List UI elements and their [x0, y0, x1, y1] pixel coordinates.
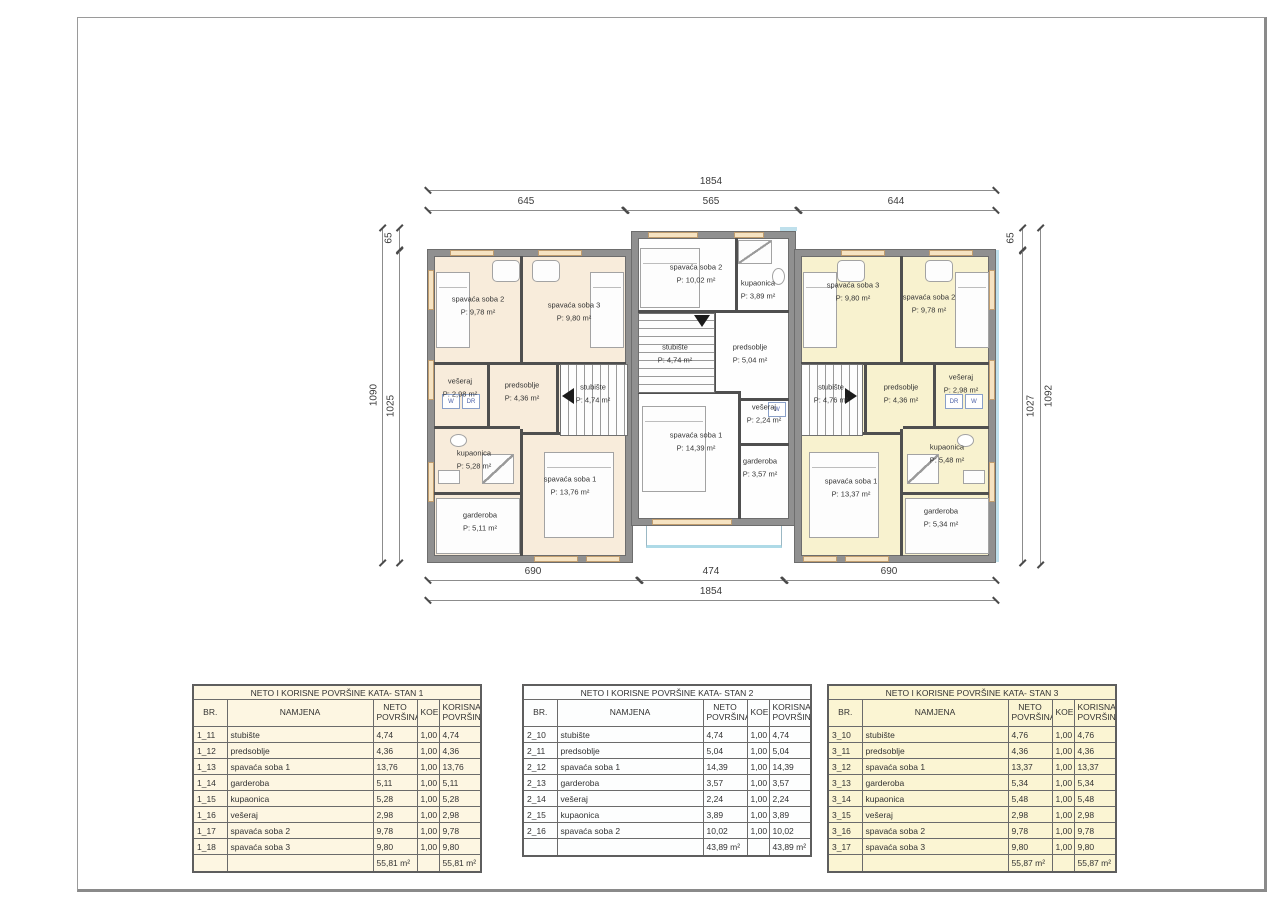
room-name: spavaća soba 2	[903, 291, 956, 304]
room-label-stubiste: stubište P: 4,76 m²	[814, 381, 849, 407]
table-cell: 2_12	[523, 759, 557, 775]
table-cell: 55,81 m²	[373, 855, 417, 873]
window-icon	[845, 556, 889, 562]
table-cell: garderoba	[557, 775, 703, 791]
table-cell: 1,00	[417, 775, 439, 791]
table-cell: 5,48	[1074, 791, 1116, 807]
bed-icon	[955, 272, 989, 348]
table-cell: KORISNA POVRŠINA	[1074, 700, 1116, 727]
table-cell: 9,80	[439, 839, 481, 855]
room-name: predsoblje	[733, 341, 768, 354]
area-table: NETO I KORISNE POVRŠINE KATA- STAN 2BR.N…	[522, 684, 812, 857]
wall	[520, 256, 523, 362]
table-cell: 1,00	[1052, 759, 1074, 775]
table-cell: BR.	[828, 700, 862, 727]
sink-icon	[963, 470, 985, 484]
room-name: kupaonica	[457, 447, 492, 460]
room-label-veseraj: vešeraj P: 2,98 m²	[944, 371, 979, 397]
table-cell: 5,11	[439, 775, 481, 791]
dim-line-top-seg3	[798, 210, 995, 211]
dim-label-left-outer: 1090	[369, 384, 380, 406]
dim-line-right-inner	[1022, 250, 1023, 562]
table-cell: 1,00	[747, 743, 769, 759]
table-cell: KOEF.	[1052, 700, 1074, 727]
table-cell: 1_18	[193, 839, 227, 855]
table-cell: 3_16	[828, 823, 862, 839]
room-label-spavaca-soba-3: spavaća soba 3 P: 9,80 m²	[827, 279, 880, 305]
table-cell: 14,39	[769, 759, 811, 775]
room-area: P: 5,28 m²	[457, 460, 492, 473]
table-cell	[828, 855, 862, 873]
room-name: stubište	[814, 381, 849, 394]
table-cell: 2,98	[439, 807, 481, 823]
table-cell: 3_10	[828, 727, 862, 743]
table-cell: spavaća soba 1	[227, 759, 373, 775]
room-name: spavaća soba 2	[670, 261, 723, 274]
room-name: predsoblje	[884, 381, 919, 394]
window-icon	[989, 462, 995, 502]
table-cell: kupaonica	[862, 791, 1008, 807]
table-cell: 9,78	[439, 823, 481, 839]
table-cell: 9,78	[373, 823, 417, 839]
dim-line-left-outer	[382, 228, 383, 562]
table-cell: 55,81 m²	[439, 855, 481, 873]
table-cell: 10,02	[703, 823, 747, 839]
window-icon	[734, 232, 764, 238]
window-icon	[586, 556, 620, 562]
room-label-spavaca-soba-1: spavaća soba 1 P: 13,76 m²	[544, 473, 597, 499]
table-cell: 3,89	[703, 807, 747, 823]
table-title: NETO I KORISNE POVRŠINE KATA- STAN 2	[523, 685, 811, 700]
table-title: NETO I KORISNE POVRŠINE KATA- STAN 3	[828, 685, 1116, 700]
table-cell: 2,24	[703, 791, 747, 807]
table-cell: predsoblje	[862, 743, 1008, 759]
room-label-veseraj: vešeraj P: 2,98 m²	[443, 375, 478, 401]
table-cell: 2_16	[523, 823, 557, 839]
table-cell: 10,02	[769, 823, 811, 839]
facade-strip-middle-top	[780, 227, 797, 231]
room-label-garderoba: garderoba P: 5,34 m²	[924, 505, 959, 531]
window-icon	[428, 462, 434, 502]
area-table: NETO I KORISNE POVRŠINE KATA- STAN 1BR.N…	[192, 684, 482, 873]
dim-line-bottom-seg1	[428, 580, 639, 581]
table-cell: KORISNA POVRŠINA	[439, 700, 481, 727]
room-name: garderoba	[463, 509, 497, 522]
room-area: P: 2,98 m²	[944, 384, 979, 397]
dim-line-bottom-seg2	[639, 580, 784, 581]
toilet-icon	[450, 434, 467, 447]
window-icon	[803, 556, 837, 562]
wall	[903, 492, 989, 495]
room-name: stubište	[576, 381, 611, 394]
table-title: NETO I KORISNE POVRŠINE KATA- STAN 1	[193, 685, 481, 700]
room-name: kupaonica	[930, 441, 965, 454]
room-name: garderoba	[743, 455, 778, 468]
wall	[556, 365, 559, 435]
room-name: spavaća soba 2	[452, 293, 505, 306]
dim-label-bottom-total: 1854	[700, 586, 722, 597]
unit-stan-1: W DR spavaća soba 2 P: 9,78 m² spavaća s…	[428, 250, 632, 562]
table-cell: garderoba	[227, 775, 373, 791]
room-area: P: 5,11 m²	[463, 522, 497, 535]
area-table-stan-3: NETO I KORISNE POVRŠINE KATA- STAN 3BR.N…	[827, 684, 1117, 873]
table-cell: spavaća soba 1	[557, 759, 703, 775]
table-cell: NETO POVRŠINA	[373, 700, 417, 727]
room-name: spavaća soba 1	[670, 429, 723, 442]
table-cell: 14,39	[703, 759, 747, 775]
room-label-predsoblje: predsoblje P: 4,36 m²	[884, 381, 919, 407]
room-name: spavaća soba 3	[548, 299, 601, 312]
room-name: vešeraj	[443, 375, 478, 388]
room-name: vešeraj	[747, 401, 782, 414]
room-area: P: 13,37 m²	[825, 488, 878, 501]
room-area: P: 4,74 m²	[658, 354, 693, 367]
dim-label-right-outer: 1092	[1044, 385, 1055, 407]
area-table-stan-1: NETO I KORISNE POVRŠINE KATA- STAN 1BR.N…	[192, 684, 482, 873]
table-cell: 1_17	[193, 823, 227, 839]
room-area: P: 14,39 m²	[670, 442, 723, 455]
table-cell: KOEF.	[747, 700, 769, 727]
dim-line-top-seg1	[428, 210, 625, 211]
desk-chair-icon	[492, 260, 520, 282]
room-area: P: 10,02 m²	[670, 274, 723, 287]
unit-stan-3: DR W spavaća soba 3 P: 9,80 m² spavaća s…	[795, 250, 995, 562]
room-label-spavaca-soba-1: spavaća soba 1 P: 14,39 m²	[670, 429, 723, 455]
table-cell: 1,00	[747, 759, 769, 775]
room-name: kupaonica	[741, 277, 776, 290]
table-cell: 1,00	[417, 743, 439, 759]
table-cell: BR.	[193, 700, 227, 727]
table-cell: NETO POVRŠINA	[703, 700, 747, 727]
table-cell: garderoba	[862, 775, 1008, 791]
window-icon	[841, 250, 885, 256]
table-cell: 9,80	[373, 839, 417, 855]
desk-chair-icon	[532, 260, 560, 282]
table-cell: 3_17	[828, 839, 862, 855]
table-cell	[227, 855, 373, 873]
wall	[434, 426, 520, 429]
table-cell	[417, 855, 439, 873]
room-name: vešeraj	[944, 371, 979, 384]
stairs-direction-arrow-icon	[562, 388, 574, 404]
table-cell: 1,00	[417, 727, 439, 743]
table-cell: 1,00	[1052, 775, 1074, 791]
table-cell: 2,98	[1008, 807, 1052, 823]
dim-label-bottom-seg3: 690	[881, 566, 898, 577]
table-cell: 2,98	[1074, 807, 1116, 823]
table-cell: 1_13	[193, 759, 227, 775]
table-cell: 9,80	[1074, 839, 1116, 855]
room-area: P: 9,78 m²	[452, 306, 505, 319]
table-cell: 3_12	[828, 759, 862, 775]
table-cell: 1,00	[747, 775, 769, 791]
table-cell: 1,00	[747, 791, 769, 807]
table-cell: 2_15	[523, 807, 557, 823]
table-cell: 5,48	[1008, 791, 1052, 807]
table-cell: 4,36	[373, 743, 417, 759]
room-name: garderoba	[924, 505, 959, 518]
room-area: P: 4,76 m²	[814, 394, 849, 407]
room-area: P: 9,78 m²	[903, 304, 956, 317]
window-icon	[428, 270, 434, 310]
room-label-veseraj: vešeraj P: 2,24 m²	[747, 401, 782, 427]
table-cell: 4,74	[769, 727, 811, 743]
table-cell: 13,37	[1074, 759, 1116, 775]
table-cell: spavaća soba 1	[862, 759, 1008, 775]
dim-line-bottom-seg3	[784, 580, 995, 581]
table-cell: 5,04	[769, 743, 811, 759]
wall	[520, 429, 523, 556]
room-name: spavaća soba 1	[544, 473, 597, 486]
wall	[933, 365, 936, 426]
table-cell: 4,76	[1008, 727, 1052, 743]
dim-line-top-total	[428, 190, 995, 191]
table-cell: 2_10	[523, 727, 557, 743]
table-cell	[1052, 855, 1074, 873]
table-cell: 13,37	[1008, 759, 1052, 775]
table-cell: stubište	[557, 727, 703, 743]
room-label-predsoblje: predsoblje P: 4,36 m²	[505, 379, 540, 405]
table-cell: 2_11	[523, 743, 557, 759]
room-label-kupaonica: kupaonica P: 5,48 m²	[930, 441, 965, 467]
dim-line-top-seg2	[625, 210, 798, 211]
table-cell: 9,78	[1008, 823, 1052, 839]
table-cell: 1,00	[1052, 839, 1074, 855]
table-cell: 1,00	[1052, 807, 1074, 823]
room-label-stubiste: stubište P: 4,74 m²	[658, 341, 693, 367]
table-cell: 5,28	[373, 791, 417, 807]
table-cell: NAMJENA	[557, 700, 703, 727]
table-cell	[862, 855, 1008, 873]
table-cell: 1,00	[1052, 727, 1074, 743]
table-cell: 3_11	[828, 743, 862, 759]
table-cell: 4,36	[1008, 743, 1052, 759]
table-cell: 2_14	[523, 791, 557, 807]
table-cell: 43,89 m²	[769, 839, 811, 857]
window-icon	[652, 519, 732, 525]
window-icon	[428, 360, 434, 400]
table-cell: 1,00	[417, 839, 439, 855]
table-cell: KORISNA POVRŠINA	[769, 700, 811, 727]
table-cell: 1,00	[417, 807, 439, 823]
room-area: P: 2,24 m²	[747, 414, 782, 427]
unit-stan-2: W spavaća soba 2 P: 10,02 m² kupaonica P…	[632, 232, 795, 525]
stairs-direction-arrow-icon	[694, 315, 710, 327]
table-cell: KOEF.	[417, 700, 439, 727]
room-area: P: 3,57 m²	[743, 468, 778, 481]
wall	[487, 365, 490, 426]
table-cell: 2,24	[769, 791, 811, 807]
table-cell: 43,89 m²	[703, 839, 747, 857]
table-cell: 55,87 m²	[1074, 855, 1116, 873]
room-area: P: 5,04 m²	[733, 354, 768, 367]
desk-chair-icon	[925, 260, 953, 282]
table-cell: 5,34	[1074, 775, 1116, 791]
table-cell: 3,57	[769, 775, 811, 791]
table-cell: 1_12	[193, 743, 227, 759]
table-cell	[557, 839, 703, 857]
table-cell: 1,00	[1052, 823, 1074, 839]
room-name: spavaća soba 1	[825, 475, 878, 488]
room-area: P: 2,98 m²	[443, 388, 478, 401]
table-cell: 5,04	[703, 743, 747, 759]
room-label-kupaonica: kupaonica P: 5,28 m²	[457, 447, 492, 473]
dim-line-right-outer	[1040, 228, 1041, 564]
table-cell: 1,00	[1052, 743, 1074, 759]
room-label-spavaca-soba-3: spavaća soba 3 P: 9,80 m²	[548, 299, 601, 325]
room-label-spavaca-soba-2: spavaća soba 2 P: 9,78 m²	[452, 293, 505, 319]
room-label-kupaonica: kupaonica P: 3,89 m²	[741, 277, 776, 303]
table-cell: 1_15	[193, 791, 227, 807]
table-cell: 1,00	[1052, 791, 1074, 807]
window-icon	[450, 250, 494, 256]
room-area: P: 5,48 m²	[930, 454, 965, 467]
wall	[738, 443, 789, 446]
window-icon	[989, 360, 995, 400]
table-cell: BR.	[523, 700, 557, 727]
room-name: stubište	[658, 341, 693, 354]
dim-label-top-seg1: 645	[518, 196, 535, 207]
table-cell: 2,98	[373, 807, 417, 823]
room-label-spavaca-soba-2: spavaća soba 2 P: 10,02 m²	[670, 261, 723, 287]
table-cell: kupaonica	[557, 807, 703, 823]
table-cell: NAMJENA	[862, 700, 1008, 727]
window-icon	[534, 556, 578, 562]
room-area: P: 4,74 m²	[576, 394, 611, 407]
table-cell: 13,76	[373, 759, 417, 775]
wall	[864, 365, 867, 435]
table-cell: NAMJENA	[227, 700, 373, 727]
room-name: spavaća soba 3	[827, 279, 880, 292]
table-cell: 5,28	[439, 791, 481, 807]
table-cell: spavaća soba 2	[862, 823, 1008, 839]
table-cell	[523, 839, 557, 857]
drawing-sheet: 1854 645 565 644 690 474 690 1854 65 109…	[0, 0, 1280, 905]
table-cell: vešeraj	[227, 807, 373, 823]
window-icon	[929, 250, 973, 256]
room-area: P: 5,34 m²	[924, 518, 959, 531]
table-cell: 1,00	[747, 823, 769, 839]
table-cell: kupaonica	[227, 791, 373, 807]
dim-label-right-offset: 65	[1006, 232, 1017, 243]
table-cell: 4,74	[439, 727, 481, 743]
table-cell: 4,74	[703, 727, 747, 743]
window-icon	[989, 270, 995, 310]
dim-label-bottom-seg2: 474	[703, 566, 720, 577]
wall	[738, 394, 741, 519]
shower-icon	[738, 240, 772, 264]
room-label-predsoblje: predsoblje P: 5,04 m²	[733, 341, 768, 367]
table-cell: stubište	[227, 727, 373, 743]
table-cell: spavaća soba 2	[227, 823, 373, 839]
table-cell: 3,89	[769, 807, 811, 823]
room-area: P: 3,89 m²	[741, 290, 776, 303]
room-area: P: 9,80 m²	[548, 312, 601, 325]
table-cell: 1_11	[193, 727, 227, 743]
table-cell: 1,00	[417, 759, 439, 775]
room-label-stubiste: stubište P: 4,74 m²	[576, 381, 611, 407]
table-cell: 4,74	[373, 727, 417, 743]
table-cell: 1,00	[417, 791, 439, 807]
room-area: P: 13,76 m²	[544, 486, 597, 499]
dim-line-bottom-total	[428, 600, 995, 601]
table-cell: 55,87 m²	[1008, 855, 1052, 873]
dim-label-top-seg3: 644	[888, 196, 905, 207]
table-cell: 4,76	[1074, 727, 1116, 743]
table-cell: NETO POVRŠINA	[1008, 700, 1052, 727]
table-cell: spavaća soba 3	[227, 839, 373, 855]
wall	[434, 492, 520, 495]
room-area: P: 4,36 m²	[505, 392, 540, 405]
wall	[903, 426, 989, 429]
table-cell: 3_14	[828, 791, 862, 807]
dim-label-top-seg2: 565	[703, 196, 720, 207]
room-label-garderoba: garderoba P: 5,11 m²	[463, 509, 497, 535]
table-cell: 5,34	[1008, 775, 1052, 791]
table-cell: vešeraj	[557, 791, 703, 807]
table-cell: vešeraj	[862, 807, 1008, 823]
area-table: NETO I KORISNE POVRŠINE KATA- STAN 3BR.N…	[827, 684, 1117, 873]
dim-label-left-offset: 65	[384, 232, 395, 243]
room-label-garderoba: garderoba P: 3,57 m²	[743, 455, 778, 481]
table-cell: spavaća soba 2	[557, 823, 703, 839]
dim-line-left-inner	[399, 250, 400, 562]
table-cell: 1,00	[747, 727, 769, 743]
table-cell: 3,57	[703, 775, 747, 791]
table-cell: 9,80	[1008, 839, 1052, 855]
table-cell: 5,11	[373, 775, 417, 791]
table-cell: predsoblje	[227, 743, 373, 759]
table-cell: 4,36	[1074, 743, 1116, 759]
room-area: P: 9,80 m²	[827, 292, 880, 305]
table-cell: spavaća soba 3	[862, 839, 1008, 855]
table-cell: 3_13	[828, 775, 862, 791]
window-icon	[538, 250, 582, 256]
window-icon	[648, 232, 698, 238]
table-cell: 1_14	[193, 775, 227, 791]
room-label-spavaca-soba-1: spavaća soba 1 P: 13,37 m²	[825, 475, 878, 501]
table-cell: 1_16	[193, 807, 227, 823]
room-label-spavaca-soba-2: spavaća soba 2 P: 9,78 m²	[903, 291, 956, 317]
area-table-stan-2: NETO I KORISNE POVRŠINE KATA- STAN 2BR.N…	[522, 684, 812, 857]
table-cell: 4,36	[439, 743, 481, 759]
table-cell: 13,76	[439, 759, 481, 775]
table-cell: 1,00	[747, 807, 769, 823]
table-cell: 9,78	[1074, 823, 1116, 839]
table-cell	[193, 855, 227, 873]
room-area: P: 4,36 m²	[884, 394, 919, 407]
table-cell: 1,00	[417, 823, 439, 839]
dim-label-left-inner: 1025	[386, 395, 397, 417]
table-cell: 2_13	[523, 775, 557, 791]
balcony-middle	[646, 525, 782, 548]
table-cell: stubište	[862, 727, 1008, 743]
table-cell: predsoblje	[557, 743, 703, 759]
facade-strip-right	[995, 250, 999, 562]
dim-label-right-inner: 1027	[1026, 395, 1037, 417]
dim-label-bottom-seg1: 690	[525, 566, 542, 577]
table-cell: 3_15	[828, 807, 862, 823]
table-cell	[747, 839, 769, 857]
dim-label-top-total: 1854	[700, 176, 722, 187]
room-name: predsoblje	[505, 379, 540, 392]
